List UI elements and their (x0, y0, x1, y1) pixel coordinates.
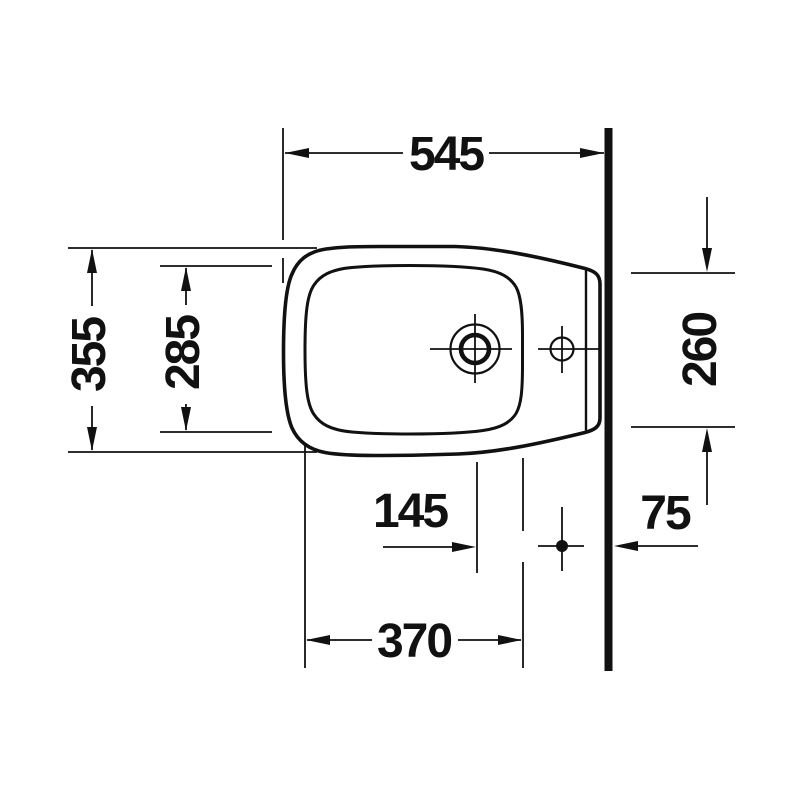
technical-drawing: 545 355 285 (0, 0, 793, 793)
dimension-145-label: 145 (373, 485, 448, 538)
dim-285-arrow-down-icon (181, 407, 191, 431)
dim-355-arrow-up-icon (87, 249, 97, 273)
dim-370-arrow-right-icon (498, 635, 522, 645)
tap-hole (430, 314, 512, 383)
dimension-75-label: 75 (640, 487, 691, 540)
dimension-260: 260 (631, 197, 735, 505)
dim-545-arrow-left-icon (285, 148, 309, 158)
dim-75-arrow-left-icon (614, 541, 638, 551)
mounting-hole (538, 326, 601, 373)
dimension-260-label: 260 (674, 313, 727, 387)
dimension-370-label: 370 (377, 615, 451, 668)
wall-line (605, 128, 613, 671)
dimension-370: 370 (305, 443, 523, 668)
drain-point (538, 507, 584, 571)
dimension-545-label: 545 (409, 128, 484, 181)
dimension-355-label: 355 (63, 317, 116, 392)
dim-285-arrow-up-icon (181, 267, 191, 291)
dim-260-arrow-up-icon (702, 428, 712, 452)
dim-145-arrow-right-icon (452, 542, 476, 552)
dimension-145: 145 (373, 485, 476, 552)
bidet-outer-outline (284, 247, 601, 456)
dimension-75: 75 (614, 487, 698, 551)
dim-260-arrow-down-icon (702, 248, 712, 272)
dim-370-arrow-left-icon (306, 635, 330, 645)
dim-355-arrow-down-icon (87, 427, 97, 451)
technical-drawing-page: 545 355 285 (0, 0, 793, 793)
dim-545-arrow-right-icon (580, 148, 604, 158)
dimension-285-label: 285 (157, 315, 210, 390)
dimension-285: 285 (157, 266, 272, 432)
